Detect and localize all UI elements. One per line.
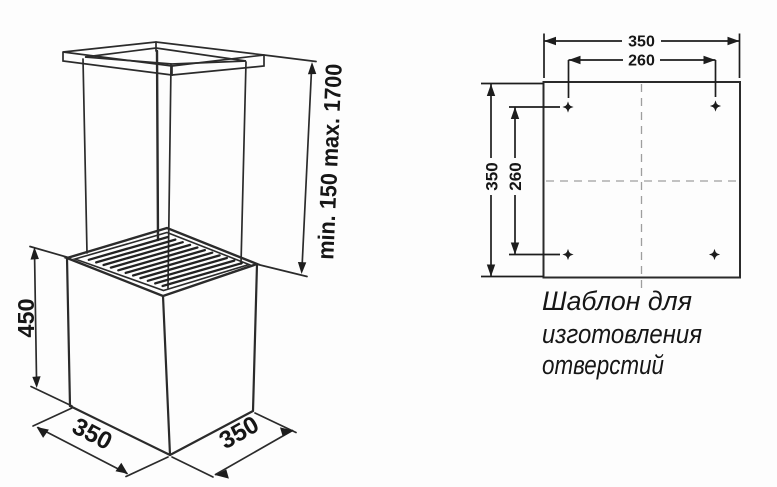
svg-text:350: 350: [68, 413, 117, 456]
svg-text:изготовления: изготовления: [542, 319, 702, 349]
svg-text:450: 450: [13, 298, 39, 337]
svg-text:отверстий: отверстий: [542, 350, 664, 380]
svg-text:min. 150 max. 1700: min. 150 max. 1700: [312, 63, 347, 260]
svg-text:350: 350: [215, 411, 264, 455]
svg-text:260: 260: [628, 53, 655, 70]
svg-text:260: 260: [506, 162, 525, 190]
svg-text:Шаблон для: Шаблон для: [542, 286, 692, 316]
svg-text:350: 350: [483, 162, 502, 190]
svg-text:350: 350: [628, 34, 655, 51]
